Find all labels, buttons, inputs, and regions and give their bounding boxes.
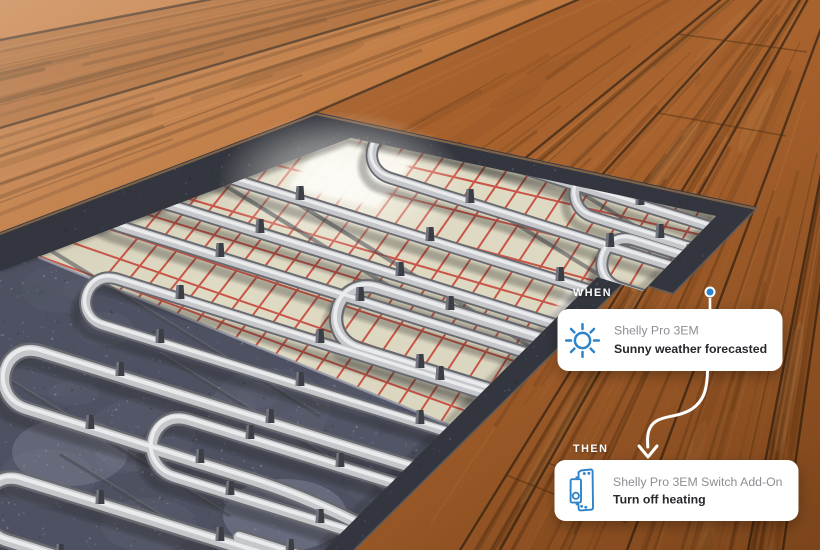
svg-text:WHEN: WHEN — [573, 287, 612, 299]
svg-text:Shelly Pro 3EM: Shelly Pro 3EM — [614, 324, 699, 338]
svg-text:Sunny weather forecasted: Sunny weather forecasted — [614, 342, 767, 356]
svg-text:THEN: THEN — [573, 443, 608, 455]
svg-text:Shelly Pro 3EM Switch Add-On: Shelly Pro 3EM Switch Add-On — [613, 475, 783, 489]
svg-text:Turn off heating: Turn off heating — [613, 493, 706, 507]
